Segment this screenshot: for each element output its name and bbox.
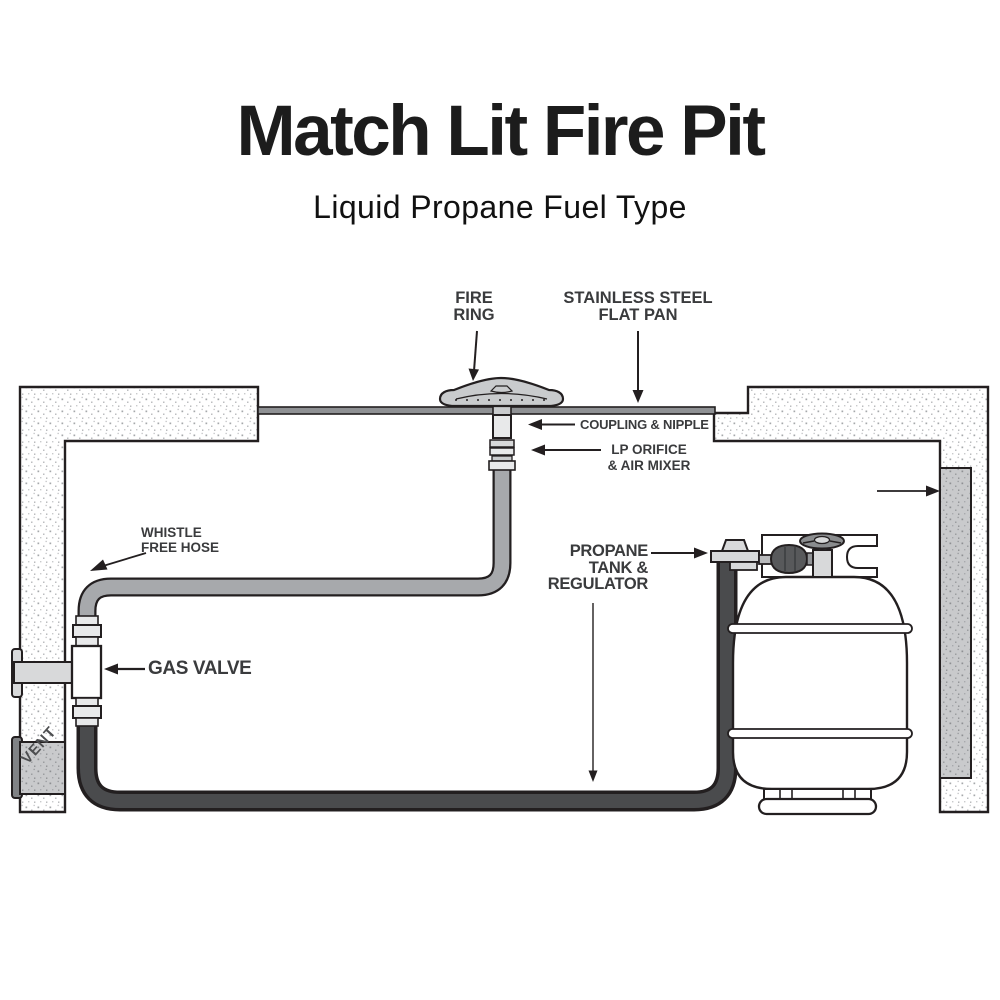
tank-valve-body	[813, 550, 832, 577]
arrow-coupling	[528, 419, 575, 430]
arrow-fire-ring	[469, 331, 480, 381]
right-wall-inner-panel	[940, 468, 971, 778]
coupling-and-nipple	[493, 415, 511, 438]
label-whistle-free-hose: WHISTLE FREE HOSE	[141, 526, 219, 555]
page: Match Lit Fire Pit Liquid Propane Fuel T…	[0, 0, 1000, 1000]
arrow-whistle-hose	[90, 553, 146, 571]
label-lp-orifice: LP ORIFICE & AIR MIXER	[589, 442, 709, 474]
regulator-pigtail	[771, 545, 807, 573]
gas-valve-body	[72, 646, 101, 698]
flat-pan	[258, 407, 715, 414]
arrow-propane-hose	[589, 603, 598, 782]
tank-base	[759, 799, 876, 814]
tank-weld-band-top	[728, 624, 912, 633]
fire-pit-diagram	[0, 0, 1000, 1000]
label-flat-pan: STAINLESS STEEL FLAT PAN	[558, 290, 718, 324]
lp-orifice-air-mixer	[489, 440, 515, 470]
arrow-right-wall	[877, 486, 940, 497]
arrow-flat-pan	[633, 331, 644, 403]
label-propane-tank: PROPANE TANK & REGULATOR	[498, 543, 648, 593]
tank-weld-band-bottom	[728, 729, 912, 738]
gas-valve	[72, 616, 101, 726]
label-gas-valve: GAS VALVE	[148, 658, 251, 680]
label-fire-ring: FIRE RING	[434, 290, 514, 324]
tank-body	[733, 577, 907, 789]
arrow-gas-valve	[104, 664, 145, 675]
label-coupling-nipple: COUPLING & NIPPLE	[580, 417, 709, 432]
tank-valve-handwheel	[800, 534, 844, 549]
arrow-propane-tank	[651, 548, 708, 559]
